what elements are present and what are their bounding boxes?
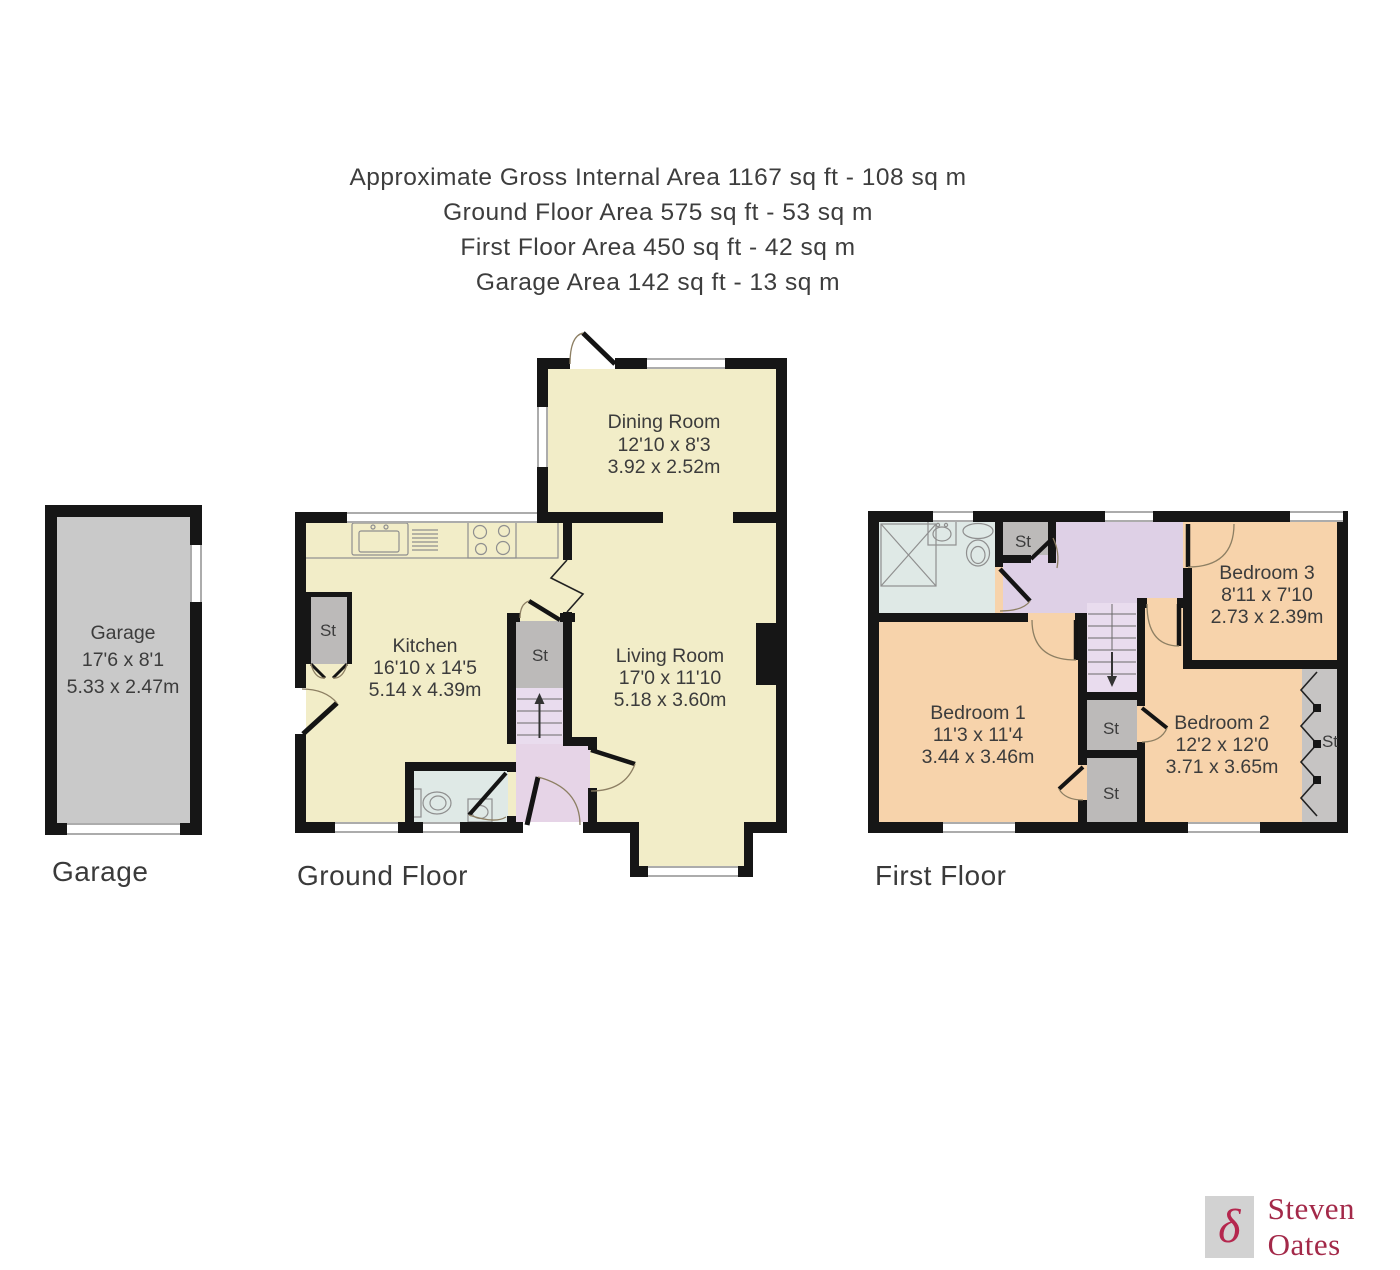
bedroom3-name: Bedroom 3 xyxy=(1219,562,1314,584)
wc-floor xyxy=(414,771,508,823)
bedroom2-imperial: 12'2 x 12'0 xyxy=(1175,734,1268,756)
ground-floor-plan-label: Ground Floor xyxy=(297,860,468,892)
agency-logo: δ Steven Oates xyxy=(1205,1191,1400,1263)
bedroom1-imperial: 11'3 x 11'4 xyxy=(933,724,1023,746)
garage-window xyxy=(190,545,202,602)
dining-room-imperial: 12'10 x 8'3 xyxy=(617,434,710,456)
agency-logo-brand: Steven Oates xyxy=(1268,1191,1400,1263)
bay-window xyxy=(648,866,738,877)
dining-window-top xyxy=(647,358,725,369)
kitchen-name: Kitchen xyxy=(392,635,457,657)
kitchen-window xyxy=(347,512,537,523)
wc-window xyxy=(423,822,460,833)
floorplan-page: Approximate Gross Internal Area 1167 sq … xyxy=(0,0,1400,1270)
bathroom-floor xyxy=(879,522,995,613)
kitchen-imperial: 16'10 x 14'5 xyxy=(373,657,477,679)
bedroom3-window xyxy=(1290,511,1343,522)
kitchen-metric: 5.14 x 4.39m xyxy=(369,679,482,701)
dining-window-left xyxy=(537,407,548,467)
chimney-breast xyxy=(756,623,787,685)
living-room-metric: 5.18 x 3.60m xyxy=(614,689,727,711)
first-floor-plan: Bedroom 1 11'3 x 11'4 3.44 x 3.46m Bedro… xyxy=(868,511,1348,833)
agency-logo-monogram-icon: δ xyxy=(1205,1196,1254,1258)
front-door-opening xyxy=(523,822,583,833)
bedroom1-window xyxy=(943,822,1015,833)
ground-floor-plan: Dining Room 12'10 x 8'3 3.92 x 2.52m Kit… xyxy=(295,333,787,877)
bedroom2-window xyxy=(1188,822,1260,833)
garage-room-imperial: 17'6 x 8'1 xyxy=(82,649,164,671)
landing-window xyxy=(1105,511,1153,522)
living-room-imperial: 17'0 x 11'10 xyxy=(619,667,722,689)
living-room-name: Living Room xyxy=(616,645,724,667)
first-floor-plan-label: First Floor xyxy=(875,860,1007,892)
landing-storage-label: St xyxy=(1015,532,1031,551)
dining-room-name: Dining Room xyxy=(608,411,721,433)
bedroom3-metric: 2.73 x 2.39m xyxy=(1211,606,1324,628)
garage-door-opening xyxy=(67,823,180,835)
bedroom3-imperial: 8'11 x 7'10 xyxy=(1221,584,1313,606)
mid-storage-upper-label: St xyxy=(1103,719,1119,738)
bedroom1-metric: 3.44 x 3.46m xyxy=(922,746,1035,768)
dining-room-metric: 3.92 x 2.52m xyxy=(608,456,721,478)
bedroom2-name: Bedroom 2 xyxy=(1174,712,1269,734)
bedroom1-name: Bedroom 1 xyxy=(930,702,1025,724)
center-storage-label: St xyxy=(532,646,548,665)
back-door-opening xyxy=(295,688,306,734)
kitchen-window-bottom xyxy=(335,822,398,833)
garage-room-metric: 5.33 x 2.47m xyxy=(67,676,180,698)
garage-room-name: Garage xyxy=(90,622,155,644)
mid-storage-lower-label: St xyxy=(1103,784,1119,803)
garage-plan-label: Garage xyxy=(52,856,148,888)
bedroom2-metric: 3.71 x 3.65m xyxy=(1166,756,1279,778)
wardrobe-storage-label: St xyxy=(1322,732,1338,751)
garage-plan: Garage 17'6 x 8'1 5.33 x 2.47m xyxy=(45,505,202,835)
kitchen-storage-label: St xyxy=(320,621,336,640)
bathroom-window xyxy=(933,511,973,522)
floorplan-drawing: Garage 17'6 x 8'1 5.33 x 2.47m xyxy=(0,0,1400,1270)
